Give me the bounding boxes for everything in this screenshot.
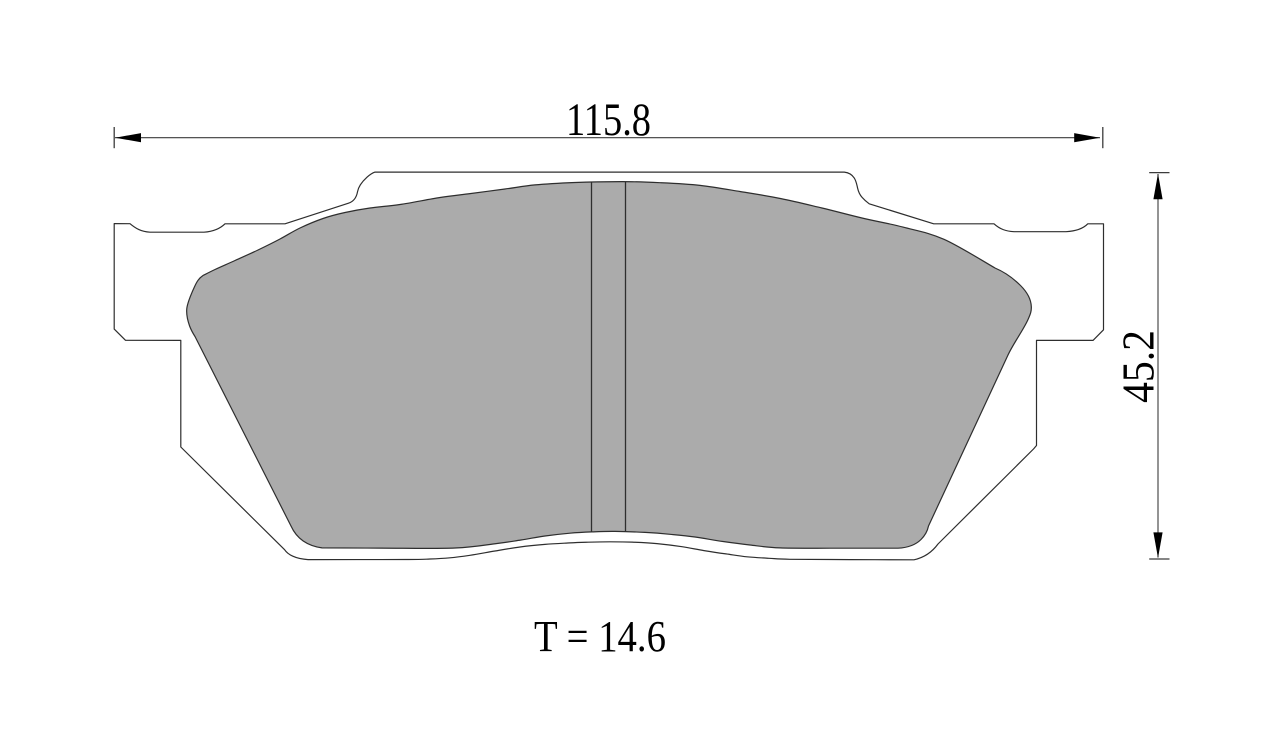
svg-text:T = 14.6: T = 14.6 (534, 612, 666, 661)
svg-text:115.8: 115.8 (566, 95, 651, 146)
svg-text:45.2: 45.2 (1113, 330, 1164, 403)
